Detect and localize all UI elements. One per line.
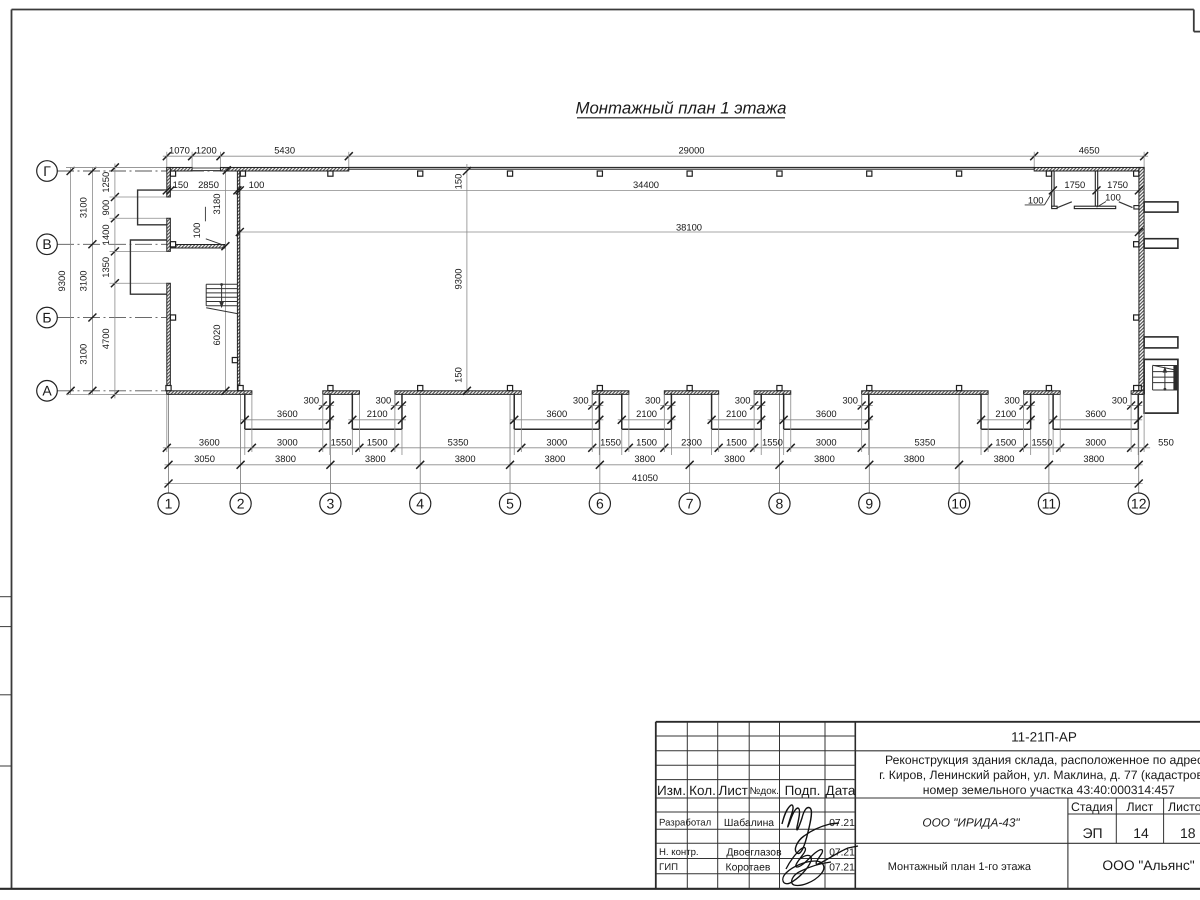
svg-text:3800: 3800 [904, 453, 925, 464]
svg-text:3000: 3000 [816, 436, 837, 447]
svg-text:3800: 3800 [275, 453, 296, 464]
svg-text:38100: 38100 [676, 221, 702, 232]
svg-text:300: 300 [573, 394, 589, 405]
svg-text:А: А [42, 383, 52, 399]
svg-text:Кол.: Кол. [689, 783, 716, 798]
svg-text:6020: 6020 [211, 325, 222, 346]
svg-text:Стадия: Стадия [1071, 800, 1113, 814]
svg-text:4: 4 [416, 496, 424, 512]
svg-text:ГИП: ГИП [659, 862, 678, 873]
svg-text:ООО "ИРИДА-43": ООО "ИРИДА-43" [922, 816, 1020, 830]
svg-text:2100: 2100 [995, 408, 1016, 419]
svg-text:4700: 4700 [100, 328, 111, 349]
svg-text:9300: 9300 [452, 269, 463, 290]
svg-text:3800: 3800 [545, 453, 566, 464]
svg-text:3800: 3800 [814, 453, 835, 464]
svg-text:2100: 2100 [726, 408, 747, 419]
svg-text:3000: 3000 [546, 436, 567, 447]
svg-text:2100: 2100 [636, 408, 657, 419]
svg-text:1200: 1200 [196, 145, 217, 156]
svg-text:Листов: Листов [1168, 800, 1200, 814]
svg-text:Разработал: Разработал [659, 818, 711, 829]
svg-text:2300: 2300 [681, 436, 702, 447]
svg-text:номер земельного участка 43:40: номер земельного участка 43:40:000314:45… [923, 783, 1175, 797]
svg-text:150: 150 [452, 174, 463, 190]
svg-text:3000: 3000 [1085, 436, 1106, 447]
svg-text:7: 7 [686, 496, 694, 512]
svg-text:1500: 1500 [726, 436, 747, 447]
svg-text:г. Киров, Ленинский район, ул.: г. Киров, Ленинский район, ул. Маклина, … [879, 768, 1200, 782]
svg-text:ООО "Альянс": ООО "Альянс" [1102, 858, 1194, 873]
svg-text:1550: 1550 [1031, 436, 1052, 447]
svg-text:5350: 5350 [448, 436, 469, 447]
svg-text:900: 900 [100, 200, 111, 216]
svg-text:150: 150 [452, 367, 463, 383]
svg-text:9: 9 [865, 496, 873, 512]
svg-text:100: 100 [1028, 194, 1044, 205]
svg-text:3800: 3800 [724, 453, 745, 464]
svg-text:12: 12 [1131, 496, 1147, 512]
svg-text:3600: 3600 [816, 408, 837, 419]
svg-text:3600: 3600 [199, 436, 220, 447]
svg-text:300: 300 [645, 394, 661, 405]
svg-text:2100: 2100 [367, 408, 388, 419]
svg-text:41050: 41050 [632, 472, 658, 483]
svg-text:Б: Б [42, 309, 51, 325]
svg-text:3800: 3800 [634, 453, 655, 464]
svg-text:8: 8 [776, 496, 784, 512]
svg-text:1350: 1350 [100, 257, 111, 278]
svg-text:550: 550 [1158, 436, 1174, 447]
svg-text:Н. контр.: Н. контр. [659, 847, 699, 858]
svg-text:07.21: 07.21 [829, 848, 855, 859]
svg-text:Г: Г [43, 163, 51, 179]
svg-text:300: 300 [303, 394, 319, 405]
svg-text:3100: 3100 [78, 197, 89, 218]
svg-text:18: 18 [1180, 825, 1196, 841]
svg-text:300: 300 [735, 394, 751, 405]
svg-text:100: 100 [249, 179, 265, 190]
svg-text:1550: 1550 [600, 436, 621, 447]
svg-text:3180: 3180 [211, 194, 222, 215]
svg-text:5430: 5430 [274, 145, 295, 156]
svg-text:3: 3 [327, 496, 335, 512]
svg-text:11: 11 [1042, 496, 1057, 512]
svg-text:Изм.: Изм. [657, 783, 686, 798]
svg-text:300: 300 [1004, 394, 1020, 405]
svg-text:14: 14 [1133, 825, 1149, 841]
svg-text:Коротаев: Коротаев [726, 862, 771, 873]
svg-text:4650: 4650 [1079, 145, 1100, 156]
svg-text:300: 300 [376, 394, 392, 405]
svg-text:1250: 1250 [100, 172, 111, 193]
svg-text:Лист: Лист [719, 783, 748, 798]
svg-text:3600: 3600 [277, 408, 298, 419]
svg-text:1750: 1750 [1107, 179, 1128, 190]
svg-text:Реконструкция здания склада, р: Реконструкция здания склада, расположенн… [885, 753, 1200, 767]
svg-text:1750: 1750 [1064, 179, 1085, 190]
svg-text:3050: 3050 [194, 453, 215, 464]
svg-text:100: 100 [191, 223, 202, 239]
svg-text:1550: 1550 [331, 436, 352, 447]
svg-text:150: 150 [173, 179, 189, 190]
svg-text:1400: 1400 [100, 224, 111, 245]
svg-text:Шабалина: Шабалина [724, 818, 774, 829]
svg-text:3100: 3100 [78, 344, 89, 365]
svg-text:5: 5 [506, 496, 514, 512]
svg-text:2: 2 [237, 496, 245, 512]
svg-text:100: 100 [1105, 191, 1121, 202]
svg-text:ЭП: ЭП [1082, 825, 1102, 841]
svg-text:Монтажный план 1 этажа: Монтажный план 1 этажа [576, 99, 787, 118]
svg-text:10: 10 [951, 496, 967, 512]
svg-text:1550: 1550 [762, 436, 783, 447]
svg-text:1500: 1500 [995, 436, 1016, 447]
svg-text:6: 6 [596, 496, 604, 512]
svg-text:Двоеглазов: Двоеглазов [726, 847, 782, 858]
svg-text:Монтажный план 1-го этажа: Монтажный план 1-го этажа [888, 861, 1032, 873]
svg-text:300: 300 [1112, 394, 1128, 405]
svg-text:2850: 2850 [198, 179, 219, 190]
svg-text:3800: 3800 [455, 453, 476, 464]
svg-text:Подп.: Подп. [785, 783, 821, 798]
svg-text:Дата: Дата [826, 783, 856, 798]
svg-text:1500: 1500 [367, 436, 388, 447]
svg-text:300: 300 [842, 394, 858, 405]
svg-text:5350: 5350 [914, 436, 935, 447]
svg-text:3000: 3000 [277, 436, 298, 447]
svg-text:3800: 3800 [994, 453, 1015, 464]
svg-text:3800: 3800 [1083, 453, 1104, 464]
svg-text:№док.: №док. [750, 786, 779, 797]
svg-text:В: В [42, 236, 51, 252]
svg-text:07.21: 07.21 [829, 863, 855, 874]
svg-text:1070: 1070 [169, 145, 190, 156]
svg-text:11-21П-АР: 11-21П-АР [1011, 730, 1077, 745]
svg-text:9300: 9300 [56, 271, 67, 292]
svg-text:3600: 3600 [1085, 408, 1106, 419]
svg-text:3100: 3100 [78, 270, 89, 291]
svg-text:29000: 29000 [678, 145, 704, 156]
svg-text:3800: 3800 [365, 453, 386, 464]
svg-text:Лист: Лист [1127, 800, 1154, 814]
svg-text:3600: 3600 [546, 408, 567, 419]
svg-text:34400: 34400 [633, 179, 659, 190]
svg-text:1500: 1500 [636, 436, 657, 447]
svg-text:1: 1 [165, 496, 173, 512]
